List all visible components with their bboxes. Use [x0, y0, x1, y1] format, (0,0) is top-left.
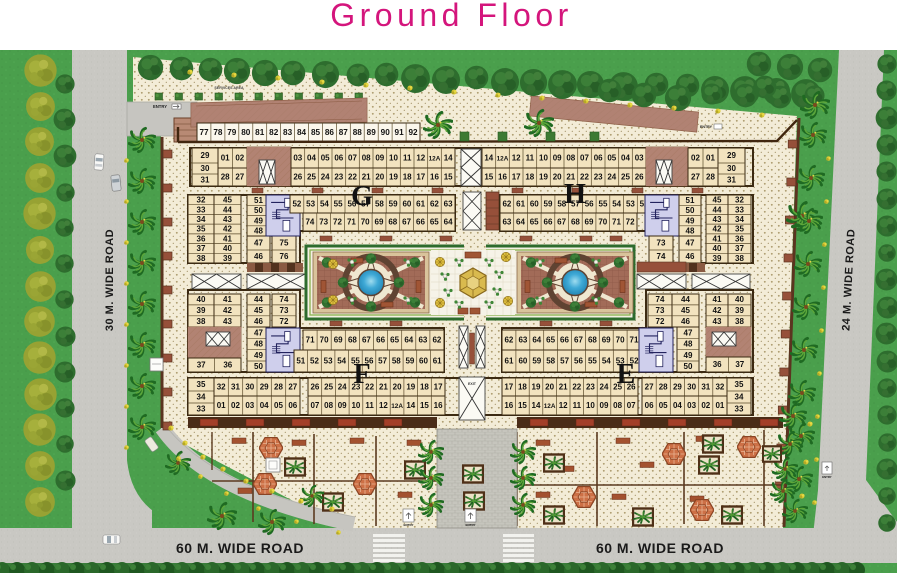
svg-text:77: 77	[199, 128, 209, 137]
svg-text:05: 05	[321, 154, 330, 163]
svg-text:46: 46	[686, 252, 695, 261]
svg-text:45: 45	[681, 306, 690, 315]
svg-text:20: 20	[545, 383, 554, 392]
svg-text:14: 14	[532, 401, 541, 410]
svg-text:29: 29	[673, 383, 682, 392]
svg-text:70: 70	[598, 218, 607, 227]
svg-text:11: 11	[403, 154, 412, 163]
svg-text:52: 52	[310, 357, 319, 366]
svg-text:61: 61	[505, 357, 514, 366]
svg-text:75: 75	[280, 239, 289, 248]
svg-text:41: 41	[713, 234, 722, 243]
svg-text:32: 32	[197, 196, 206, 205]
svg-text:70: 70	[320, 336, 329, 345]
svg-text:69: 69	[585, 218, 594, 227]
svg-text:09: 09	[600, 401, 609, 410]
svg-text:41: 41	[223, 295, 232, 304]
svg-text:10: 10	[389, 154, 398, 163]
svg-text:34: 34	[197, 393, 206, 402]
svg-text:60: 60	[419, 357, 428, 366]
svg-text:64: 64	[404, 336, 413, 345]
svg-text:70: 70	[616, 336, 625, 345]
svg-text:47: 47	[684, 328, 693, 337]
svg-text:67: 67	[402, 218, 411, 227]
svg-text:66: 66	[376, 336, 385, 345]
svg-text:67: 67	[362, 336, 371, 345]
svg-text:82: 82	[269, 128, 279, 137]
svg-text:ENTRY: ENTRY	[700, 125, 713, 129]
svg-text:48: 48	[254, 340, 263, 349]
svg-text:38: 38	[735, 254, 744, 263]
svg-text:51: 51	[296, 357, 305, 366]
svg-text:49: 49	[254, 351, 263, 360]
svg-text:17: 17	[504, 383, 513, 392]
svg-text:43: 43	[223, 317, 232, 326]
svg-text:57: 57	[560, 357, 569, 366]
svg-text:19: 19	[539, 173, 548, 182]
svg-text:29: 29	[201, 151, 210, 160]
svg-text:44: 44	[254, 295, 263, 304]
svg-text:08: 08	[324, 401, 333, 410]
svg-text:25: 25	[324, 383, 333, 392]
svg-text:61: 61	[416, 200, 425, 209]
svg-text:49: 49	[684, 351, 693, 360]
svg-text:71: 71	[347, 218, 356, 227]
svg-text:63: 63	[444, 200, 453, 209]
svg-text:49: 49	[254, 216, 263, 225]
svg-text:73: 73	[656, 306, 665, 315]
svg-text:40: 40	[223, 244, 232, 253]
svg-text:15: 15	[518, 401, 527, 410]
svg-text:32: 32	[715, 383, 724, 392]
svg-text:72: 72	[333, 218, 342, 227]
svg-text:34: 34	[735, 393, 744, 402]
svg-text:66: 66	[544, 218, 553, 227]
svg-text:SERVICES AREA: SERVICES AREA	[214, 86, 244, 90]
svg-text:38: 38	[735, 317, 744, 326]
svg-text:57: 57	[378, 357, 387, 366]
svg-text:39: 39	[713, 254, 722, 263]
svg-text:26: 26	[293, 173, 302, 182]
svg-text:01: 01	[221, 154, 230, 163]
svg-text:03: 03	[245, 401, 254, 410]
svg-text:ENTRY: ENTRY	[822, 475, 832, 479]
svg-text:61: 61	[433, 357, 442, 366]
svg-text:03: 03	[635, 154, 644, 163]
svg-text:09: 09	[375, 154, 384, 163]
svg-text:16: 16	[430, 173, 439, 182]
svg-text:59: 59	[532, 357, 541, 366]
svg-text:21: 21	[379, 383, 388, 392]
svg-text:33: 33	[735, 405, 744, 414]
svg-text:46: 46	[254, 252, 263, 261]
svg-text:74: 74	[656, 295, 665, 304]
svg-text:69: 69	[334, 336, 343, 345]
svg-text:14: 14	[444, 154, 453, 163]
svg-text:15: 15	[484, 173, 493, 182]
svg-text:65: 65	[530, 218, 539, 227]
svg-text:31: 31	[231, 383, 240, 392]
svg-text:27: 27	[235, 173, 244, 182]
svg-text:10: 10	[351, 401, 360, 410]
svg-text:47: 47	[254, 239, 263, 248]
svg-text:55: 55	[334, 200, 343, 209]
svg-text:67: 67	[557, 218, 566, 227]
svg-text:45: 45	[254, 306, 263, 315]
svg-text:16: 16	[504, 401, 513, 410]
svg-text:H: H	[564, 179, 586, 210]
svg-text:36: 36	[197, 234, 206, 243]
svg-text:66: 66	[560, 336, 569, 345]
svg-text:06: 06	[288, 401, 297, 410]
svg-text:28: 28	[274, 383, 283, 392]
svg-text:17: 17	[416, 173, 425, 182]
svg-text:09: 09	[553, 154, 562, 163]
svg-text:74: 74	[305, 218, 314, 227]
svg-text:07: 07	[348, 154, 357, 163]
svg-text:44: 44	[713, 205, 722, 214]
svg-text:62: 62	[504, 336, 513, 345]
svg-text:91: 91	[395, 128, 405, 137]
svg-text:29: 29	[260, 383, 269, 392]
svg-text:ENTRY: ENTRY	[403, 523, 413, 527]
svg-text:25: 25	[307, 173, 316, 182]
svg-text:12: 12	[416, 154, 425, 163]
svg-text:14: 14	[406, 401, 415, 410]
svg-text:45: 45	[713, 196, 722, 205]
svg-text:10: 10	[586, 401, 595, 410]
svg-text:40: 40	[735, 295, 744, 304]
svg-text:22: 22	[572, 383, 581, 392]
svg-text:18: 18	[525, 173, 534, 182]
svg-text:30: 30	[727, 164, 736, 173]
svg-text:ENTRY: ENTRY	[465, 523, 475, 527]
svg-text:29: 29	[727, 151, 736, 160]
svg-text:32: 32	[735, 196, 744, 205]
svg-text:56: 56	[574, 357, 583, 366]
svg-text:01: 01	[217, 401, 226, 410]
svg-text:02: 02	[701, 401, 710, 410]
svg-text:36: 36	[713, 360, 722, 369]
svg-text:28: 28	[706, 173, 715, 182]
svg-text:44: 44	[681, 295, 690, 304]
svg-text:20: 20	[375, 173, 384, 182]
svg-text:36: 36	[735, 234, 744, 243]
svg-text:30: 30	[201, 164, 210, 173]
svg-text:48: 48	[686, 227, 695, 236]
svg-text:74: 74	[280, 295, 289, 304]
svg-text:65: 65	[430, 218, 439, 227]
svg-text:85: 85	[311, 128, 321, 137]
svg-text:59: 59	[389, 200, 398, 209]
svg-text:59: 59	[405, 357, 414, 366]
svg-text:69: 69	[602, 336, 611, 345]
svg-text:37: 37	[735, 360, 744, 369]
svg-text:26: 26	[310, 383, 319, 392]
svg-text:02: 02	[235, 154, 244, 163]
svg-text:84: 84	[297, 128, 307, 137]
svg-text:33: 33	[197, 405, 206, 414]
svg-text:34: 34	[197, 215, 206, 224]
svg-text:64: 64	[516, 218, 525, 227]
svg-text:24: 24	[338, 383, 347, 392]
svg-text:40: 40	[713, 244, 722, 253]
svg-text:40: 40	[197, 295, 206, 304]
svg-text:E: E	[617, 359, 636, 390]
svg-text:60: 60	[530, 200, 539, 209]
svg-text:92: 92	[408, 128, 418, 137]
svg-text:30 M. WIDE ROAD: 30 M. WIDE ROAD	[104, 229, 116, 331]
svg-text:42: 42	[223, 306, 232, 315]
svg-text:51: 51	[254, 196, 263, 205]
svg-text:24: 24	[321, 173, 330, 182]
svg-text:39: 39	[735, 306, 744, 315]
svg-text:11: 11	[365, 401, 374, 410]
svg-text:12: 12	[512, 154, 521, 163]
svg-text:27: 27	[691, 173, 700, 182]
svg-text:41: 41	[713, 295, 722, 304]
svg-text:64: 64	[444, 218, 453, 227]
svg-text:69: 69	[375, 218, 384, 227]
svg-text:25: 25	[621, 173, 630, 182]
svg-text:11: 11	[573, 401, 582, 410]
svg-text:26: 26	[635, 173, 644, 182]
svg-text:02: 02	[231, 401, 240, 410]
svg-text:48: 48	[254, 227, 263, 236]
svg-text:73: 73	[657, 239, 666, 248]
svg-text:50: 50	[686, 206, 695, 215]
svg-text:37: 37	[197, 361, 206, 370]
svg-text:39: 39	[197, 306, 206, 315]
svg-text:12: 12	[559, 401, 568, 410]
svg-text:15: 15	[444, 173, 453, 182]
svg-text:08: 08	[613, 401, 622, 410]
svg-text:24: 24	[607, 173, 616, 182]
svg-text:33: 33	[735, 205, 744, 214]
svg-text:68: 68	[348, 336, 357, 345]
svg-text:81: 81	[255, 128, 265, 137]
svg-text:53: 53	[626, 200, 635, 209]
svg-text:42: 42	[713, 225, 722, 234]
svg-text:07: 07	[310, 401, 319, 410]
svg-text:10: 10	[539, 154, 548, 163]
svg-text:03: 03	[293, 154, 302, 163]
svg-text:76: 76	[280, 252, 289, 261]
svg-text:31: 31	[201, 176, 210, 185]
svg-text:48: 48	[684, 340, 693, 349]
svg-text:38: 38	[197, 317, 206, 326]
svg-text:65: 65	[390, 336, 399, 345]
svg-text:03: 03	[687, 401, 696, 410]
svg-text:53: 53	[324, 357, 333, 366]
svg-text:19: 19	[532, 383, 541, 392]
svg-text:50: 50	[254, 206, 263, 215]
svg-text:15: 15	[420, 401, 429, 410]
svg-text:06: 06	[645, 401, 654, 410]
svg-text:54: 54	[337, 357, 346, 366]
svg-text:06: 06	[334, 154, 343, 163]
svg-text:72: 72	[656, 317, 665, 326]
svg-text:55: 55	[599, 200, 608, 209]
svg-text:33: 33	[197, 205, 206, 214]
svg-text:18: 18	[518, 383, 527, 392]
svg-text:55: 55	[588, 357, 597, 366]
svg-text:83: 83	[283, 128, 293, 137]
svg-text:35: 35	[735, 225, 744, 234]
svg-text:73: 73	[280, 306, 289, 315]
svg-text:17: 17	[434, 383, 443, 392]
svg-text:35: 35	[197, 225, 206, 234]
svg-text:80: 80	[241, 128, 251, 137]
svg-text:01: 01	[715, 401, 724, 410]
svg-text:05: 05	[607, 154, 616, 163]
svg-text:16: 16	[498, 173, 507, 182]
svg-text:42: 42	[223, 225, 232, 234]
svg-text:04: 04	[260, 401, 269, 410]
svg-text:54: 54	[602, 357, 611, 366]
svg-text:78: 78	[213, 128, 223, 137]
svg-text:42: 42	[713, 306, 722, 315]
svg-text:28: 28	[659, 383, 668, 392]
svg-text:71: 71	[612, 218, 621, 227]
svg-text:45: 45	[223, 196, 232, 205]
svg-text:43: 43	[223, 215, 232, 224]
svg-text:43: 43	[713, 317, 722, 326]
svg-text:89: 89	[367, 128, 377, 137]
svg-text:71: 71	[630, 336, 639, 345]
svg-text:56: 56	[585, 200, 594, 209]
svg-text:51: 51	[686, 196, 695, 205]
svg-text:63: 63	[518, 336, 527, 345]
svg-text:04: 04	[621, 154, 630, 163]
svg-text:36: 36	[223, 361, 232, 370]
svg-text:37: 37	[197, 244, 206, 253]
svg-text:64: 64	[532, 336, 541, 345]
svg-text:49: 49	[686, 216, 695, 225]
svg-text:12A: 12A	[544, 403, 556, 410]
svg-text:58: 58	[546, 357, 555, 366]
svg-text:12A: 12A	[497, 156, 509, 163]
svg-text:05: 05	[659, 401, 668, 410]
svg-text:87: 87	[339, 128, 349, 137]
svg-text:07: 07	[580, 154, 589, 163]
svg-text:16: 16	[434, 401, 443, 410]
svg-text:02: 02	[691, 154, 700, 163]
svg-text:34: 34	[735, 215, 744, 224]
svg-text:04: 04	[673, 401, 682, 410]
svg-text:12: 12	[379, 401, 388, 410]
svg-text:63: 63	[418, 336, 427, 345]
svg-text:18: 18	[420, 383, 429, 392]
svg-text:32: 32	[217, 383, 226, 392]
svg-text:47: 47	[254, 328, 263, 337]
svg-text:17: 17	[512, 173, 521, 182]
svg-text:30: 30	[687, 383, 696, 392]
svg-text:31: 31	[701, 383, 710, 392]
svg-text:72: 72	[280, 317, 289, 326]
svg-text:68: 68	[571, 218, 580, 227]
svg-text:60 M. WIDE ROAD: 60 M. WIDE ROAD	[176, 540, 304, 556]
svg-text:59: 59	[544, 200, 553, 209]
svg-text:60: 60	[402, 200, 411, 209]
svg-text:14: 14	[484, 154, 493, 163]
svg-text:24: 24	[600, 383, 609, 392]
svg-text:20: 20	[393, 383, 402, 392]
svg-text:74: 74	[657, 252, 666, 261]
svg-text:70: 70	[361, 218, 370, 227]
svg-text:65: 65	[546, 336, 555, 345]
svg-text:71: 71	[306, 336, 315, 345]
svg-text:31: 31	[727, 176, 736, 185]
svg-text:61: 61	[516, 200, 525, 209]
svg-text:41: 41	[223, 234, 232, 243]
svg-text:23: 23	[334, 173, 343, 182]
svg-text:60: 60	[518, 357, 527, 366]
svg-text:43: 43	[713, 215, 722, 224]
svg-text:19: 19	[406, 383, 415, 392]
svg-text:F: F	[353, 359, 370, 390]
svg-text:54: 54	[612, 200, 621, 209]
svg-text:58: 58	[375, 200, 384, 209]
svg-text:62: 62	[432, 336, 441, 345]
svg-text:30: 30	[245, 383, 254, 392]
svg-text:62: 62	[502, 200, 511, 209]
svg-text:35: 35	[735, 380, 744, 389]
svg-text:27: 27	[288, 383, 297, 392]
svg-text:28: 28	[221, 173, 230, 182]
svg-text:18: 18	[403, 173, 412, 182]
svg-text:86: 86	[325, 128, 335, 137]
svg-text:46: 46	[681, 317, 690, 326]
svg-text:04: 04	[307, 154, 316, 163]
svg-text:50: 50	[684, 362, 693, 371]
svg-text:88: 88	[353, 128, 363, 137]
svg-text:67: 67	[574, 336, 583, 345]
svg-text:12A: 12A	[391, 403, 403, 410]
svg-text:58: 58	[392, 357, 401, 366]
svg-text:23: 23	[594, 173, 603, 182]
svg-text:66: 66	[416, 218, 425, 227]
svg-text:21: 21	[559, 383, 568, 392]
svg-text:38: 38	[197, 254, 206, 263]
svg-text:46: 46	[254, 317, 263, 326]
svg-text:07: 07	[627, 401, 636, 410]
svg-text:68: 68	[388, 218, 397, 227]
svg-text:27: 27	[645, 383, 654, 392]
svg-text:50: 50	[254, 362, 263, 371]
svg-text:72: 72	[626, 218, 635, 227]
svg-text:54: 54	[320, 200, 329, 209]
svg-text:20: 20	[553, 173, 562, 182]
svg-text:62: 62	[430, 200, 439, 209]
svg-text:35: 35	[197, 380, 206, 389]
svg-text:G: G	[351, 181, 373, 212]
svg-text:08: 08	[566, 154, 575, 163]
svg-text:60 M. WIDE ROAD: 60 M. WIDE ROAD	[596, 540, 724, 556]
svg-text:73: 73	[319, 218, 328, 227]
svg-text:06: 06	[594, 154, 603, 163]
svg-text:68: 68	[588, 336, 597, 345]
svg-text:05: 05	[274, 401, 283, 410]
svg-text:53: 53	[306, 200, 315, 209]
svg-text:08: 08	[362, 154, 371, 163]
svg-text:12A: 12A	[429, 156, 441, 163]
svg-text:ENTRY: ENTRY	[153, 104, 167, 109]
svg-text:23: 23	[586, 383, 595, 392]
svg-text:09: 09	[338, 401, 347, 410]
svg-text:EXIT: EXIT	[468, 382, 477, 386]
svg-text:37: 37	[735, 244, 744, 253]
